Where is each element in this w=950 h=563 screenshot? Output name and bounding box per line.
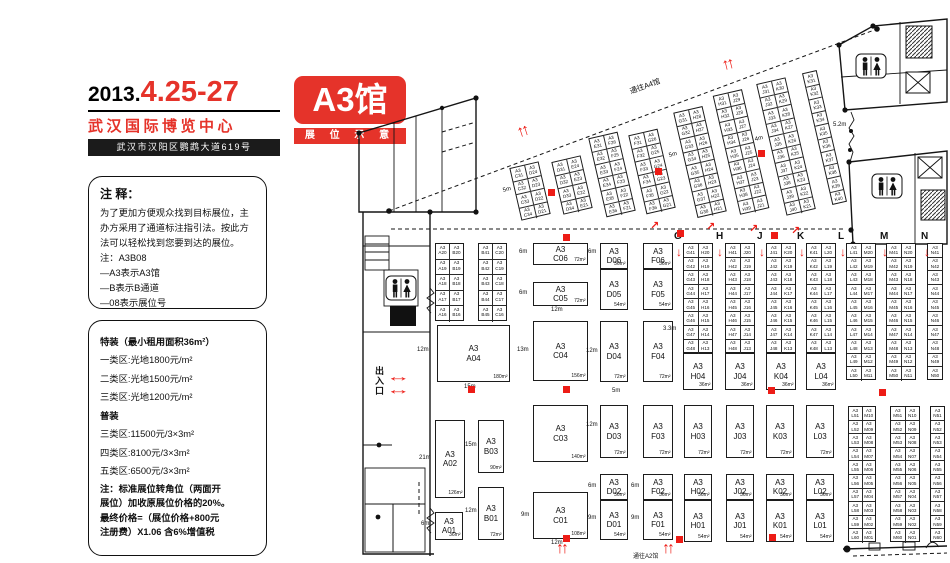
strip-row: A3 N46 bbox=[928, 312, 942, 326]
booth-label: A3 F05 bbox=[651, 280, 665, 298]
aisle-diagonal-arrow-icon: ↗ bbox=[791, 224, 800, 237]
booth-A3-K19: A3 K19 bbox=[781, 258, 796, 271]
booth-A3-H17: A3 H17 bbox=[698, 285, 713, 298]
booth-A3-H19: A3 H19 bbox=[698, 258, 713, 271]
booth-A3-F05: A3 F0554m² bbox=[643, 269, 673, 310]
booth-A3-M58: A3 M58 bbox=[891, 502, 905, 515]
booth-A3-H14: A3 H14 bbox=[698, 326, 713, 339]
booth-A3-N04: A3 N04 bbox=[905, 489, 920, 502]
booth-A3-H13: A3 H13 bbox=[698, 340, 713, 354]
booth-A3-D06: A3 D0636m² bbox=[600, 243, 628, 269]
booth-A3-J45: A3 J45 bbox=[767, 299, 781, 312]
strip-row: A3 J46A3 K15 bbox=[767, 312, 795, 326]
booth-A3-L60: A3 L60 bbox=[849, 529, 862, 543]
booth-area: 108m² bbox=[571, 532, 585, 538]
strip-row: A3 G41A3 H20 bbox=[684, 244, 712, 258]
strip-row: A3 L53A3 M08 bbox=[849, 434, 875, 448]
strip-row: A3 L41A3 M20 bbox=[847, 244, 875, 258]
booth-A3-M16: A3 M16 bbox=[861, 299, 876, 312]
booth-A3-J02: A3 J0236m² bbox=[726, 474, 754, 500]
booth-A3-N12: A3 N12 bbox=[901, 354, 916, 367]
booth-A3-J15: A3 J15 bbox=[740, 312, 755, 325]
strip-row: A3 N44 bbox=[928, 285, 942, 299]
booth-label: A3 C05 bbox=[553, 285, 568, 303]
booth-A3-C18: A3 C18 bbox=[492, 275, 506, 290]
booth-A3-M52: A3 M52 bbox=[891, 421, 905, 434]
strip-row: A3 M60A3 N01 bbox=[891, 529, 919, 543]
booth-A3-K14: A3 K14 bbox=[781, 326, 796, 339]
strip-row: A3 K42A3 L19 bbox=[807, 258, 835, 272]
booth-A3-M51: A3 M51 bbox=[891, 407, 905, 420]
booth-A3-H43: A3 H43 bbox=[726, 271, 740, 284]
strip-row: A3 B45A3 C16 bbox=[479, 306, 506, 322]
strip-row: A3 L59A3 M02 bbox=[849, 516, 875, 530]
booth-A3-M42: A3 M42 bbox=[887, 258, 901, 271]
strip-row: A3 N53 bbox=[931, 434, 944, 448]
strip-row: A3 H47A3 J14 bbox=[726, 326, 754, 340]
booth-area: 36m² bbox=[740, 493, 751, 499]
booth-A3-L45: A3 L45 bbox=[847, 299, 861, 312]
strip-row: A3 H46A3 J15 bbox=[726, 312, 754, 326]
strip-row: A3 L49A3 M12 bbox=[847, 354, 875, 368]
dimension-label: 21m bbox=[419, 455, 431, 461]
strip-row: A3 H43A3 J18 bbox=[726, 271, 754, 285]
booth-A3-M05: A3 M05 bbox=[862, 475, 876, 488]
booth-A3-M55: A3 M55 bbox=[891, 461, 905, 474]
booth-A3-H01: A3 H0154m² bbox=[684, 500, 712, 542]
strip-row: A3 L50A3 M11 bbox=[847, 367, 875, 381]
strip-row: A3 J48A3 K13 bbox=[767, 340, 795, 354]
booth-A3-L49: A3 L49 bbox=[847, 354, 861, 367]
booth-A3-L13: A3 L13 bbox=[821, 340, 836, 354]
booth-A3-M04: A3 M04 bbox=[862, 489, 876, 502]
dimension-label: 6m bbox=[519, 249, 527, 255]
dimension-label: 6m bbox=[631, 483, 639, 489]
aisle-down-arrow-icon: ↓ bbox=[840, 245, 846, 259]
dimension-label: 9m bbox=[588, 515, 596, 521]
dimension-label: 6m bbox=[421, 521, 429, 527]
pillar-marker bbox=[771, 232, 778, 239]
strip-row: A3 M57A3 N04 bbox=[891, 489, 919, 503]
dimension-label: 6m bbox=[588, 483, 596, 489]
booth-label: A3 B01 bbox=[484, 504, 498, 522]
booth-A3-L03: A3 L0372m² bbox=[806, 405, 834, 458]
booth-label: A3 H03 bbox=[691, 422, 706, 440]
booth-A3-D05: A3 D0554m² bbox=[600, 269, 628, 310]
dimension-label: 6m bbox=[519, 290, 527, 296]
booth-area: 36m² bbox=[741, 383, 752, 389]
right-wall bbox=[848, 112, 854, 162]
strip-row: A3 G42A3 H19 bbox=[684, 258, 712, 272]
strip-row: A3 A17A3 B17 bbox=[436, 291, 463, 307]
booth-A3-F03: A3 F0372m² bbox=[643, 405, 673, 458]
booth-strip-8: A3 N41A3 N42A3 N43A3 N44A3 N45A3 N46A3 N… bbox=[927, 243, 943, 380]
booth-A3-M59: A3 M59 bbox=[891, 516, 905, 529]
booth-label: A3 L03 bbox=[813, 422, 826, 440]
booth-A3-L50: A3 L50 bbox=[847, 367, 861, 381]
booth-A3-B19: A3 B19 bbox=[449, 260, 463, 275]
booth-A3-F06: A3 F0636m² bbox=[643, 243, 673, 269]
exit-entrance-label: 出入口 bbox=[373, 366, 386, 396]
booth-A3-L14: A3 L14 bbox=[821, 326, 836, 339]
booth-A3-M60: A3 M60 bbox=[891, 529, 905, 543]
booth-A3-J03: A3 J0372m² bbox=[726, 405, 754, 458]
booth-A3-L47: A3 L47 bbox=[847, 326, 861, 339]
booth-A3-L15: A3 L15 bbox=[821, 312, 836, 325]
strip-row: A3 K45A3 L16 bbox=[807, 299, 835, 313]
booth-A3-L46: A3 L46 bbox=[847, 312, 861, 325]
booth-A3-M06: A3 M06 bbox=[862, 461, 876, 474]
strip-row: A3 M42A3 N19 bbox=[887, 258, 915, 272]
strip-row: A3 N59 bbox=[931, 516, 944, 530]
booth-A3-H15: A3 H15 bbox=[698, 312, 713, 325]
dimension-label: 通往A2馆 bbox=[633, 551, 658, 560]
booth-A3-A19: A3 A19 bbox=[436, 260, 449, 275]
strip-row: A3 L58A3 M03 bbox=[849, 502, 875, 516]
strip-row: A3 N60 bbox=[931, 529, 944, 543]
booth-label: A3 D01 bbox=[607, 511, 622, 529]
strip-row: A3 J43A3 K18 bbox=[767, 271, 795, 285]
strip-row: A3 L46A3 M15 bbox=[847, 312, 875, 326]
booth-label: A3 J04 bbox=[734, 362, 747, 380]
booth-area: 90m² bbox=[490, 466, 501, 472]
booth-label: A3 D05 bbox=[607, 280, 622, 298]
booth-A3-M17: A3 M17 bbox=[861, 285, 876, 298]
strip-row: A3 N55 bbox=[931, 461, 944, 475]
booth-A3-M46: A3 M46 bbox=[887, 312, 901, 325]
booth-A3-A16: A3 A16 bbox=[436, 306, 449, 322]
strip-row: A3 J47A3 K14 bbox=[767, 326, 795, 340]
strip-row: A3 L60A3 M01 bbox=[849, 529, 875, 543]
strip-row: A3 M51A3 N10 bbox=[891, 407, 919, 421]
booth-label: A3 C03 bbox=[553, 424, 568, 442]
aisle-letter-M: M bbox=[880, 231, 888, 242]
booth-A3-K18: A3 K18 bbox=[781, 271, 796, 284]
booth-A3-N42: A3 N42 bbox=[928, 258, 942, 271]
booth-A3-M15: A3 M15 bbox=[861, 312, 876, 325]
booth-A3-M53: A3 M53 bbox=[891, 434, 905, 447]
booth-A3-L41: A3 L41 bbox=[847, 244, 861, 257]
booth-label: A3 K03 bbox=[773, 422, 787, 440]
strip-row: A3 L51A3 M10 bbox=[849, 407, 875, 421]
strip-row: A3 M50A3 N11 bbox=[887, 367, 915, 381]
booth-A3-J01: A3 J0154m² bbox=[726, 500, 754, 542]
booth-A3-K41: A3 K41 bbox=[807, 244, 821, 257]
booth-A3-A18: A3 A18 bbox=[436, 275, 449, 290]
booth-area: 54m² bbox=[614, 533, 625, 539]
strip-row: A3 B43A3 C18 bbox=[479, 275, 506, 291]
booth-A3-N54: A3 N54 bbox=[931, 448, 944, 461]
booth-label: A3 C04 bbox=[553, 342, 568, 360]
booth-label: A3 H01 bbox=[691, 512, 706, 530]
booth-A3-M44: A3 M44 bbox=[887, 285, 901, 298]
booth-A3-K45: A3 K45 bbox=[807, 299, 821, 312]
booth-strip-5: A3 K41A3 L20A3 K42A3 L19A3 K43A3 L18A3 K… bbox=[806, 243, 836, 353]
booth-area: 36m² bbox=[698, 493, 709, 499]
booth-A3-N08: A3 N08 bbox=[905, 434, 920, 447]
aisle-down-arrow-icon: ↓ bbox=[924, 245, 930, 259]
booth-A3-H47: A3 H47 bbox=[726, 326, 740, 339]
booth-A3-N57: A3 N57 bbox=[931, 489, 944, 502]
strip-row: A3 M41A3 N20 bbox=[887, 244, 915, 258]
strip-row: A3 K43A3 L18 bbox=[807, 271, 835, 285]
strip-row: A3 N57 bbox=[931, 489, 944, 503]
booth-A3-M48: A3 M48 bbox=[887, 340, 901, 353]
booth-A3-C20: A3 C20 bbox=[492, 244, 506, 259]
booth-label: A3 D03 bbox=[607, 422, 622, 440]
pillar-marker bbox=[563, 386, 570, 393]
strip-row: A3 L45A3 M16 bbox=[847, 299, 875, 313]
booth-A3-L01: A3 L0154m² bbox=[806, 500, 834, 542]
booth-area: 72m² bbox=[659, 375, 670, 381]
strip-row: A3 H41A3 J20 bbox=[726, 244, 754, 258]
booth-A3-M20: A3 M20 bbox=[861, 244, 876, 257]
booth-A3-N09: A3 N09 bbox=[905, 421, 920, 434]
booth-A3-J04: A3 J0436m² bbox=[725, 353, 755, 390]
booth-A3-N51: A3 N51 bbox=[931, 407, 944, 420]
booth-A3-M49: A3 M49 bbox=[887, 354, 901, 367]
booth-A3-H44: A3 H44 bbox=[726, 285, 740, 298]
booth-A3-B43: A3 B43 bbox=[479, 275, 492, 290]
booth-A3-N17: A3 N17 bbox=[901, 285, 916, 298]
booth-A3-L43: A3 L43 bbox=[847, 271, 861, 284]
booth-A3-C06: A3 C0672m² bbox=[533, 243, 588, 265]
strip-row: A3 M45A3 N16 bbox=[887, 299, 915, 313]
booth-strip-11: A3 N51A3 N52A3 N53A3 N54A3 N55A3 N56A3 N… bbox=[930, 406, 945, 542]
aisle-diagonal-arrow-icon: ↗ bbox=[749, 222, 758, 235]
booth-A3-L20: A3 L20 bbox=[821, 244, 836, 257]
strip-row: A3 H42A3 J19 bbox=[726, 258, 754, 272]
strip-row: A3 K48A3 L13 bbox=[807, 340, 835, 354]
strip-row: A3 B42A3 C19 bbox=[479, 260, 506, 276]
booth-A3-L59: A3 L59 bbox=[849, 516, 862, 529]
aisle-letter-H: H bbox=[716, 231, 723, 242]
booth-A3-N16: A3 N16 bbox=[901, 299, 916, 312]
booth-strip-1: A3 B41A3 C20A3 B42A3 C19A3 B43A3 C18A3 B… bbox=[478, 243, 507, 321]
booth-area: 72m² bbox=[574, 258, 585, 264]
booth-A3-L16: A3 L16 bbox=[821, 299, 836, 312]
strip-row: A3 N43 bbox=[928, 271, 942, 285]
booth-area: 54m² bbox=[820, 535, 831, 541]
strip-row: A3 A20A3 B20 bbox=[436, 244, 463, 260]
booth-A3-D04: A3 D0472m² bbox=[600, 321, 628, 382]
booth-A3-N06: A3 N06 bbox=[905, 461, 920, 474]
booth-A3-N18: A3 N18 bbox=[901, 271, 916, 284]
stairs-icon bbox=[921, 190, 945, 220]
booth-A3-K17: A3 K17 bbox=[781, 285, 796, 298]
booth-A3-D02: A3 D0236m² bbox=[600, 474, 628, 500]
booth-A3-H16: A3 H16 bbox=[698, 299, 713, 312]
restroom-icon bbox=[872, 174, 902, 198]
booth-strip-3: A3 H41A3 J20A3 H42A3 J19A3 H43A3 J18A3 H… bbox=[725, 243, 755, 353]
strip-row: A3 K40 bbox=[831, 190, 847, 206]
booth-A3-M11: A3 M11 bbox=[861, 367, 876, 381]
elevator-icon bbox=[918, 157, 942, 178]
booth-area: 36m² bbox=[820, 493, 831, 499]
strip-row: A3 M44A3 N17 bbox=[887, 285, 915, 299]
booth-A3-N55: A3 N55 bbox=[931, 461, 944, 474]
booth-A3-H42: A3 H42 bbox=[726, 258, 740, 271]
booth-A3-N20: A3 N20 bbox=[901, 244, 916, 257]
booth-A3-H48: A3 H48 bbox=[726, 340, 740, 354]
booth-A3-K15: A3 K15 bbox=[781, 312, 796, 325]
entrance-arrow-icon: ↑↑ bbox=[662, 540, 672, 558]
booth-A3-A04: A3 A04180m² bbox=[437, 325, 510, 382]
booth-label: A3 L04 bbox=[814, 362, 827, 380]
booth-area: 126m² bbox=[448, 491, 462, 497]
booth-area: 36m² bbox=[659, 262, 670, 268]
restroom-icon bbox=[386, 276, 416, 300]
booth-A3-M43: A3 M43 bbox=[887, 271, 901, 284]
booth-A3-N58: A3 N58 bbox=[931, 502, 944, 515]
booth-A3-J16: A3 J16 bbox=[740, 299, 755, 312]
booth-A3-M03: A3 M03 bbox=[862, 502, 876, 515]
aisle-down-arrow-icon: ↓ bbox=[759, 245, 765, 259]
booth-A3-L04: A3 L0436m² bbox=[806, 353, 836, 390]
booth-label: A3 K04 bbox=[774, 362, 788, 380]
booth-strip-4: A3 J41A3 K20A3 J42A3 K19A3 J43A3 K18A3 J… bbox=[766, 243, 796, 353]
booth-A3-L52: A3 L52 bbox=[849, 421, 862, 434]
booth-A3-A20: A3 A20 bbox=[436, 244, 449, 259]
strip-row: A3 M53A3 N08 bbox=[891, 434, 919, 448]
strip-row: A3 G45A3 H16 bbox=[684, 299, 712, 313]
dimension-label: 12m bbox=[551, 307, 563, 313]
booth-strip-9: A3 L51A3 M10A3 L52A3 M09A3 L53A3 M08A3 L… bbox=[848, 406, 876, 542]
pillar-marker bbox=[758, 150, 765, 157]
booth-A3-M01: A3 M01 bbox=[862, 529, 876, 543]
strip-row: A3 M43A3 N18 bbox=[887, 271, 915, 285]
booth-area: 72m² bbox=[820, 451, 831, 457]
booth-A3-D01: A3 D0154m² bbox=[600, 500, 628, 540]
building-bottom-right bbox=[843, 542, 947, 553]
dimension-label: 5m bbox=[612, 388, 620, 394]
booth-area: 36m² bbox=[614, 493, 625, 499]
aisle-down-arrow-icon: ↓ bbox=[717, 245, 723, 259]
strip-row: A3 J45A3 K16 bbox=[767, 299, 795, 313]
aisle-letter-L: L bbox=[838, 231, 844, 242]
booth-A3-N13: A3 N13 bbox=[901, 340, 916, 353]
dashed-bottom-right bbox=[853, 553, 947, 556]
dimension-label: 6m bbox=[588, 249, 596, 255]
booth-area: 54m² bbox=[614, 303, 625, 309]
booth-A3-J46: A3 J46 bbox=[767, 312, 781, 325]
booth-A3-G47: A3 G47 bbox=[684, 326, 698, 339]
booth-area: 36m² bbox=[614, 262, 625, 268]
strip-row: A3 G46A3 H15 bbox=[684, 312, 712, 326]
dimension-label: 9m bbox=[521, 512, 529, 518]
strip-row: A3 N54 bbox=[931, 448, 944, 462]
strip-row: A3 N52 bbox=[931, 421, 944, 435]
dimension-label: 12m bbox=[465, 508, 477, 514]
booth-A3-K48: A3 K48 bbox=[807, 340, 821, 354]
booth-A3-C05: A3 C0572m² bbox=[533, 282, 588, 306]
booth-A3-M50: A3 M50 bbox=[887, 367, 901, 381]
booth-label: A3 F04 bbox=[651, 342, 665, 360]
booth-area: 72m² bbox=[740, 451, 751, 457]
booth-label: A3 A04 bbox=[466, 344, 480, 362]
booth-A3-L42: A3 L42 bbox=[847, 258, 861, 271]
strip-row: A3 J42A3 K19 bbox=[767, 258, 795, 272]
booth-A3-B20: A3 B20 bbox=[449, 244, 463, 259]
pillar-marker bbox=[769, 534, 776, 541]
booth-A3-N59: A3 N59 bbox=[931, 516, 944, 529]
booth-A3-G42: A3 G42 bbox=[684, 258, 698, 271]
booth-A3-L44: A3 L44 bbox=[847, 285, 861, 298]
strip-row: A3 M55A3 N06 bbox=[891, 461, 919, 475]
booth-A3-H04: A3 H0436m² bbox=[683, 353, 713, 390]
booth-A3-J19: A3 J19 bbox=[740, 258, 755, 271]
booth-A3-B01: A3 B0172m² bbox=[478, 487, 504, 540]
booth-A3-N48: A3 N48 bbox=[928, 340, 942, 353]
booth-A3-G44: A3 G44 bbox=[684, 285, 698, 298]
booth-A3-K43: A3 K43 bbox=[807, 271, 821, 284]
booth-label: A3 L01 bbox=[813, 512, 826, 530]
booth-strip-10: A3 M51A3 N10A3 M52A3 N09A3 M53A3 N08A3 M… bbox=[890, 406, 920, 542]
booth-A3-L19: A3 L19 bbox=[821, 258, 836, 271]
strip-row: A3 G44A3 H17 bbox=[684, 285, 712, 299]
booth-A3-L55: A3 L55 bbox=[849, 461, 862, 474]
booth-A3-J43: A3 J43 bbox=[767, 271, 781, 284]
strip-row: A3 H45A3 J16 bbox=[726, 299, 754, 313]
booth-A3-M41: A3 M41 bbox=[887, 244, 901, 257]
booth-label: A3 H04 bbox=[691, 362, 706, 380]
booth-A3-M02: A3 M02 bbox=[862, 516, 876, 529]
aisle-letter-N: N bbox=[921, 231, 928, 242]
booth-label: A3 B03 bbox=[484, 437, 498, 455]
booth-A3-H41: A3 H41 bbox=[726, 244, 740, 257]
dimension-label: 15m bbox=[465, 442, 477, 448]
strip-row: A3 K47A3 L14 bbox=[807, 326, 835, 340]
booth-area: 54m² bbox=[780, 535, 791, 541]
booth-A3-K02: A3 K0236m² bbox=[766, 474, 794, 500]
booth-A3-M12: A3 M12 bbox=[861, 354, 876, 367]
booth-A3-L48: A3 L48 bbox=[847, 340, 861, 353]
strip-row: A3 A19A3 B19 bbox=[436, 260, 463, 276]
aisle-down-arrow-icon: ↓ bbox=[882, 245, 888, 259]
pillar-marker bbox=[548, 189, 555, 196]
aisle-diagonal-arrow-icon: ↗ bbox=[706, 220, 715, 233]
booth-A3-L58: A3 L58 bbox=[849, 502, 862, 515]
booth-A3-N46: A3 N46 bbox=[928, 312, 942, 325]
booth-area: 72m² bbox=[490, 533, 501, 539]
booth-A3-N56: A3 N56 bbox=[931, 475, 944, 488]
booth-A3-B17: A3 B17 bbox=[449, 291, 463, 306]
booth-area: 72m² bbox=[659, 451, 670, 457]
strip-row: A3 L47A3 M14 bbox=[847, 326, 875, 340]
booth-A3-K46: A3 K46 bbox=[807, 312, 821, 325]
elevator-shaft bbox=[390, 306, 416, 326]
building-mid-right bbox=[846, 151, 947, 247]
pillar-marker bbox=[563, 234, 570, 241]
strip-row: A3 A18A3 B18 bbox=[436, 275, 463, 291]
booth-A3-L51: A3 L51 bbox=[849, 407, 862, 420]
pillar-marker bbox=[677, 230, 684, 237]
booth-A3-C19: A3 C19 bbox=[492, 260, 506, 275]
booth-A3-N53: A3 N53 bbox=[931, 434, 944, 447]
booth-A3-L02: A3 L0236m² bbox=[806, 474, 834, 500]
strip-row: A3 N51 bbox=[931, 407, 944, 421]
strip-row: A3 N49 bbox=[928, 354, 942, 368]
booth-A3-K44: A3 K44 bbox=[807, 285, 821, 298]
booth-A3-L56: A3 L56 bbox=[849, 475, 862, 488]
restroom-icon bbox=[856, 54, 886, 78]
booth-A3-N15: A3 N15 bbox=[901, 312, 916, 325]
booth-A3-H46: A3 H46 bbox=[726, 312, 740, 325]
strip-row: A3 G43A3 H18 bbox=[684, 271, 712, 285]
strip-row: A3 H48A3 J13 bbox=[726, 340, 754, 354]
booth-A3-B42: A3 B42 bbox=[479, 260, 492, 275]
booth-A3-N19: A3 N19 bbox=[901, 258, 916, 271]
